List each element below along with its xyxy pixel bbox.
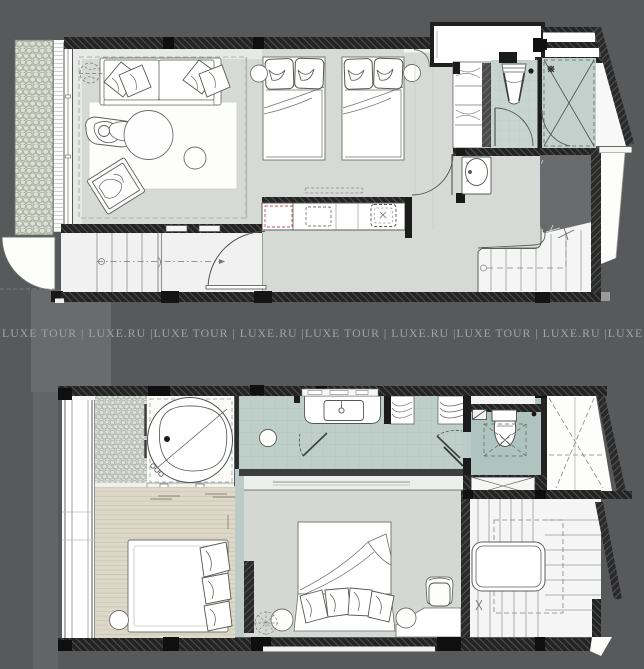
svg-text:LUXE TOUR | LUXE.RU |LUXE TOUR: LUXE TOUR | LUXE.RU |LUXE TOUR | LUXE.RU…: [2, 326, 644, 340]
